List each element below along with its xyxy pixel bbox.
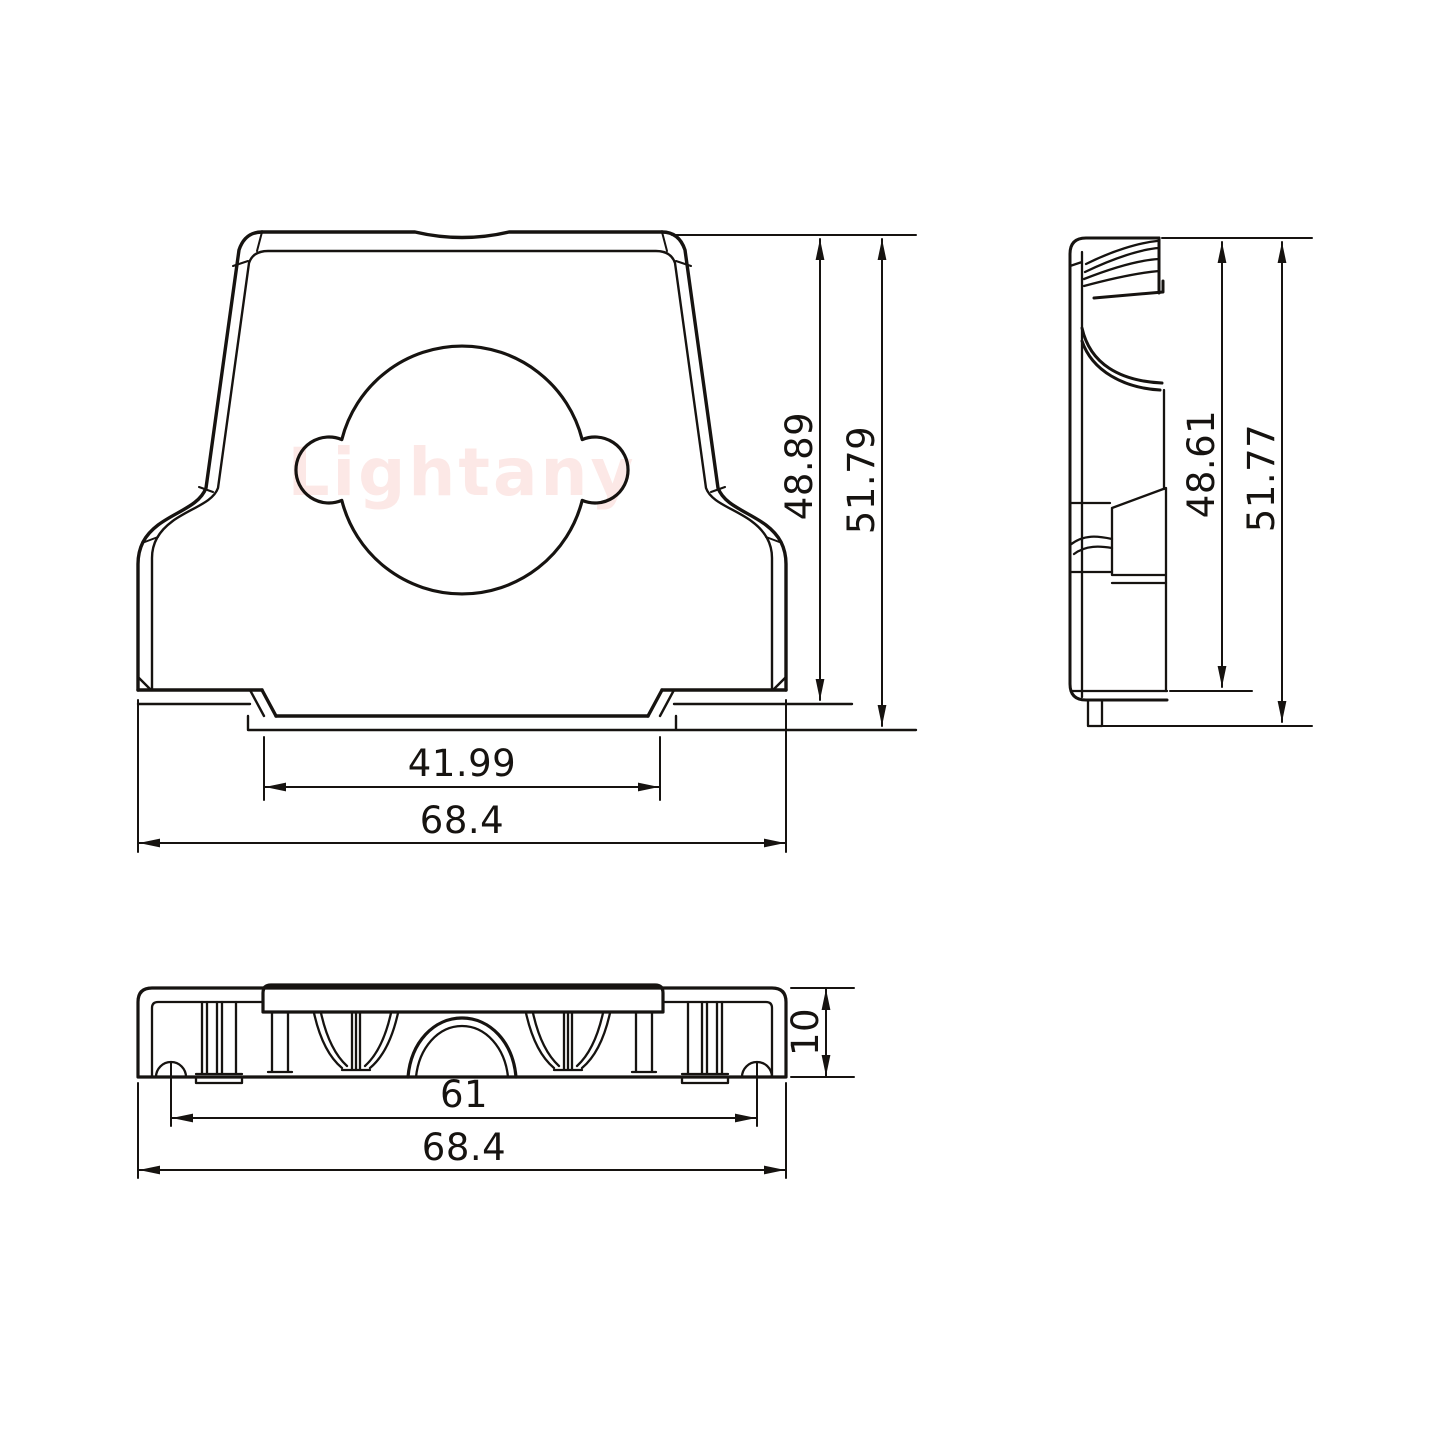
technical-drawing-page: Lightany	[0, 0, 1440, 1440]
dimension-labels: 48.89 51.79 41.99 68.4 48.61 51.77 61 68…	[408, 410, 1283, 1169]
front-step-right-diag	[262, 690, 276, 716]
side-overall-height-label: 51.77	[1240, 424, 1283, 532]
bottom-trumpet-left	[314, 1013, 398, 1070]
side-tab-bottom	[1094, 281, 1163, 298]
front-inner-width-label: 41.99	[408, 742, 516, 785]
front-outline-top	[262, 232, 662, 238]
bottom-trumpet-right	[526, 1013, 610, 1070]
bottom-overall-width-label: 68.4	[422, 1126, 506, 1169]
front-corner-chamfers	[138, 677, 786, 690]
bottom-view	[138, 985, 786, 1083]
side-outline	[1070, 238, 1167, 700]
bottom-screw-spacing-label: 61	[440, 1073, 488, 1116]
side-left-inner-edge	[1070, 252, 1082, 697]
bottom-ribs-right	[682, 1002, 728, 1074]
bottom-ribs-left	[196, 1002, 242, 1074]
bottom-depth-label: 10	[784, 1008, 827, 1056]
side-bottom-foot	[1088, 700, 1102, 726]
drawing-linework	[138, 232, 1312, 1178]
bottom-rib-block-left	[268, 1012, 292, 1072]
side-scoop-outer	[1082, 328, 1162, 383]
front-step-inner-diags	[250, 690, 674, 716]
bottom-rib-block-right	[632, 1012, 656, 1072]
dsub-backshell-drawing: Lightany	[0, 0, 1440, 1440]
front-overall-height-label: 51.79	[840, 426, 883, 534]
bottom-arch-inner	[416, 1026, 508, 1077]
front-bottom-lip	[248, 716, 916, 730]
front-overall-width-label: 68.4	[420, 799, 504, 842]
side-screw-boss	[1112, 488, 1166, 583]
side-latch-hook	[1070, 537, 1112, 554]
side-inner-height-label: 48.61	[1180, 410, 1223, 518]
front-inner-height-label: 48.89	[778, 412, 821, 520]
side-cable-grooves	[1084, 241, 1159, 286]
watermark-text: Lightany	[287, 434, 636, 511]
dimension-lines	[138, 235, 1312, 1178]
side-view	[1070, 238, 1167, 726]
front-step-left-diag	[648, 690, 662, 716]
